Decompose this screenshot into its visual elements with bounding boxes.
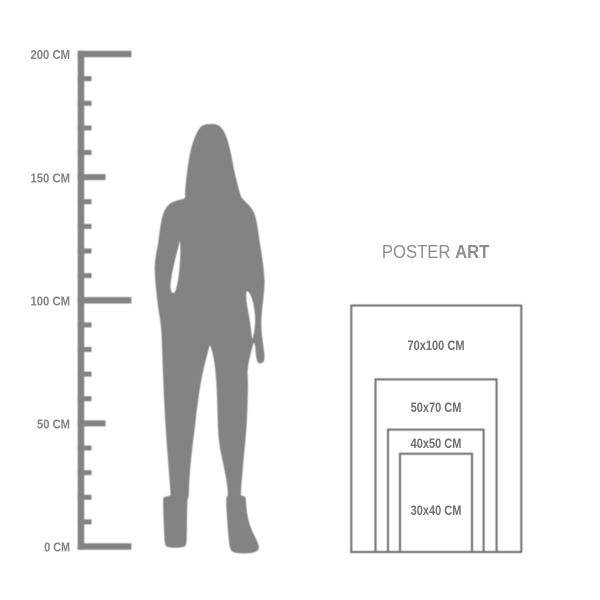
svg-text:ART: ART — [455, 242, 489, 262]
svg-text:50x70 CM: 50x70 CM — [411, 400, 462, 415]
svg-text:50 CM: 50 CM — [37, 417, 70, 432]
svg-text:40x50 CM: 40x50 CM — [411, 436, 462, 451]
svg-text:150 CM: 150 CM — [31, 170, 71, 185]
svg-text:0 CM: 0 CM — [44, 540, 70, 555]
svg-text:30x40 CM: 30x40 CM — [411, 503, 462, 518]
svg-text:70x100 CM: 70x100 CM — [408, 338, 465, 353]
svg-text:100 CM: 100 CM — [31, 294, 71, 309]
svg-text:200 CM: 200 CM — [31, 47, 71, 62]
svg-text:POSTER: POSTER — [382, 242, 451, 262]
